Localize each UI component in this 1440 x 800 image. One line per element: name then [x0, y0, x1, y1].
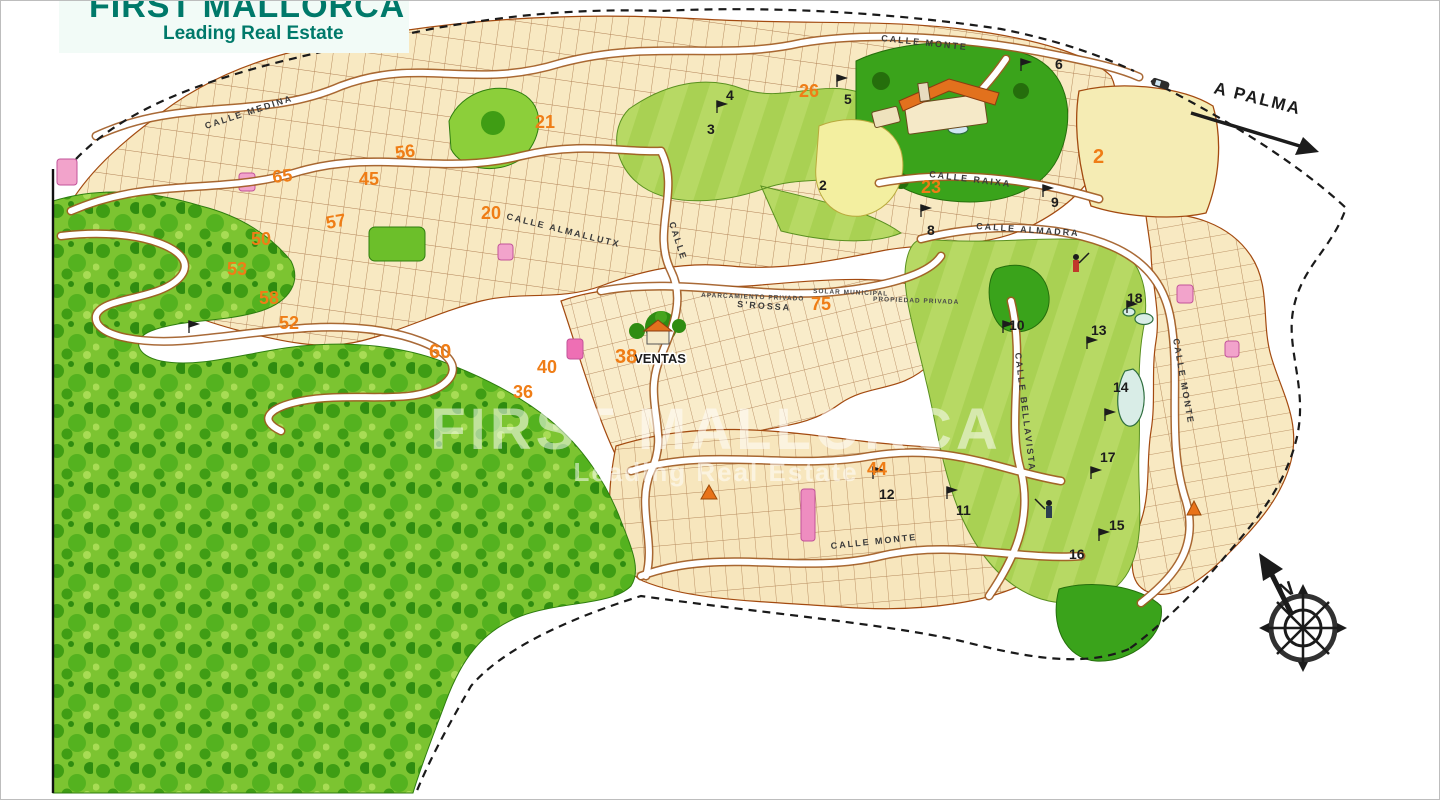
- hole-number: 13: [1091, 322, 1107, 338]
- hole-number: 12: [879, 486, 895, 502]
- hole-number: 9: [1051, 194, 1059, 210]
- hole-number: 14: [1113, 379, 1129, 395]
- hole-number: 11: [956, 502, 971, 518]
- map-canvas: VENTAS A PALMA N CALL: [1, 1, 1440, 800]
- tree-icon: [872, 72, 890, 90]
- zone-number: 56: [394, 140, 417, 163]
- hole-number: 8: [927, 222, 935, 238]
- hole-number: 17: [1100, 449, 1116, 465]
- sales-office-label: VENTAS: [634, 351, 686, 366]
- zone-number: 44: [867, 459, 887, 479]
- scanned-map-page: VENTAS A PALMA N CALL: [0, 0, 1440, 800]
- pink-parcel: [57, 159, 77, 185]
- green-patch: [369, 227, 425, 261]
- hole-number: 15: [1109, 517, 1125, 533]
- hole-number: 6: [1055, 56, 1063, 72]
- watermark-tagline: Leading Real Estate: [573, 457, 858, 487]
- watermark-title: FIRST MALLORCA: [430, 397, 1002, 462]
- zone-number: 58: [259, 288, 279, 308]
- zone-number: 57: [324, 210, 347, 233]
- zone-number: 50: [251, 229, 271, 249]
- compass-north-label: N: [1276, 577, 1297, 602]
- brand-logo: FIRST MALLORCA Leading Real Estate: [59, 1, 409, 53]
- hole-number: 4: [726, 87, 734, 103]
- parcel-strip-east: [1132, 214, 1293, 594]
- zone-number: 65: [271, 165, 293, 187]
- zone-number: 23: [921, 177, 941, 197]
- tree-icon: [1013, 83, 1029, 99]
- zone-number: 2: [1093, 146, 1104, 168]
- pink-parcel: [1225, 341, 1239, 357]
- hole-number: 16: [1069, 546, 1085, 562]
- pink-parcel: [801, 489, 815, 541]
- logo-tagline: Leading Real Estate: [163, 23, 344, 44]
- compass-rose: N: [1259, 553, 1347, 672]
- zone-number: 75: [811, 294, 831, 314]
- logo-title: FIRST MALLORCA: [89, 1, 405, 25]
- hole-number: 2: [819, 177, 827, 193]
- pink-parcel: [1177, 285, 1193, 303]
- zone-number: 45: [359, 169, 379, 189]
- zone-number: 40: [537, 357, 557, 377]
- hole-number: 3: [707, 121, 715, 137]
- zone-number: 53: [227, 259, 247, 279]
- hole-number: 18: [1127, 290, 1143, 306]
- green-patch: [481, 111, 505, 135]
- zone-number: 26: [799, 81, 819, 101]
- direction-label: A PALMA: [1212, 78, 1303, 118]
- zone-number: 60: [429, 341, 451, 363]
- hole-number: 5: [844, 91, 852, 107]
- pink-parcel: [498, 244, 513, 260]
- zone-number: 52: [279, 313, 299, 333]
- pink-parcel: [567, 339, 583, 359]
- zone-number: 21: [535, 112, 555, 132]
- hole-number: 10: [1009, 317, 1025, 333]
- zone-number: 38: [615, 346, 637, 368]
- zone-number: 20: [481, 203, 501, 223]
